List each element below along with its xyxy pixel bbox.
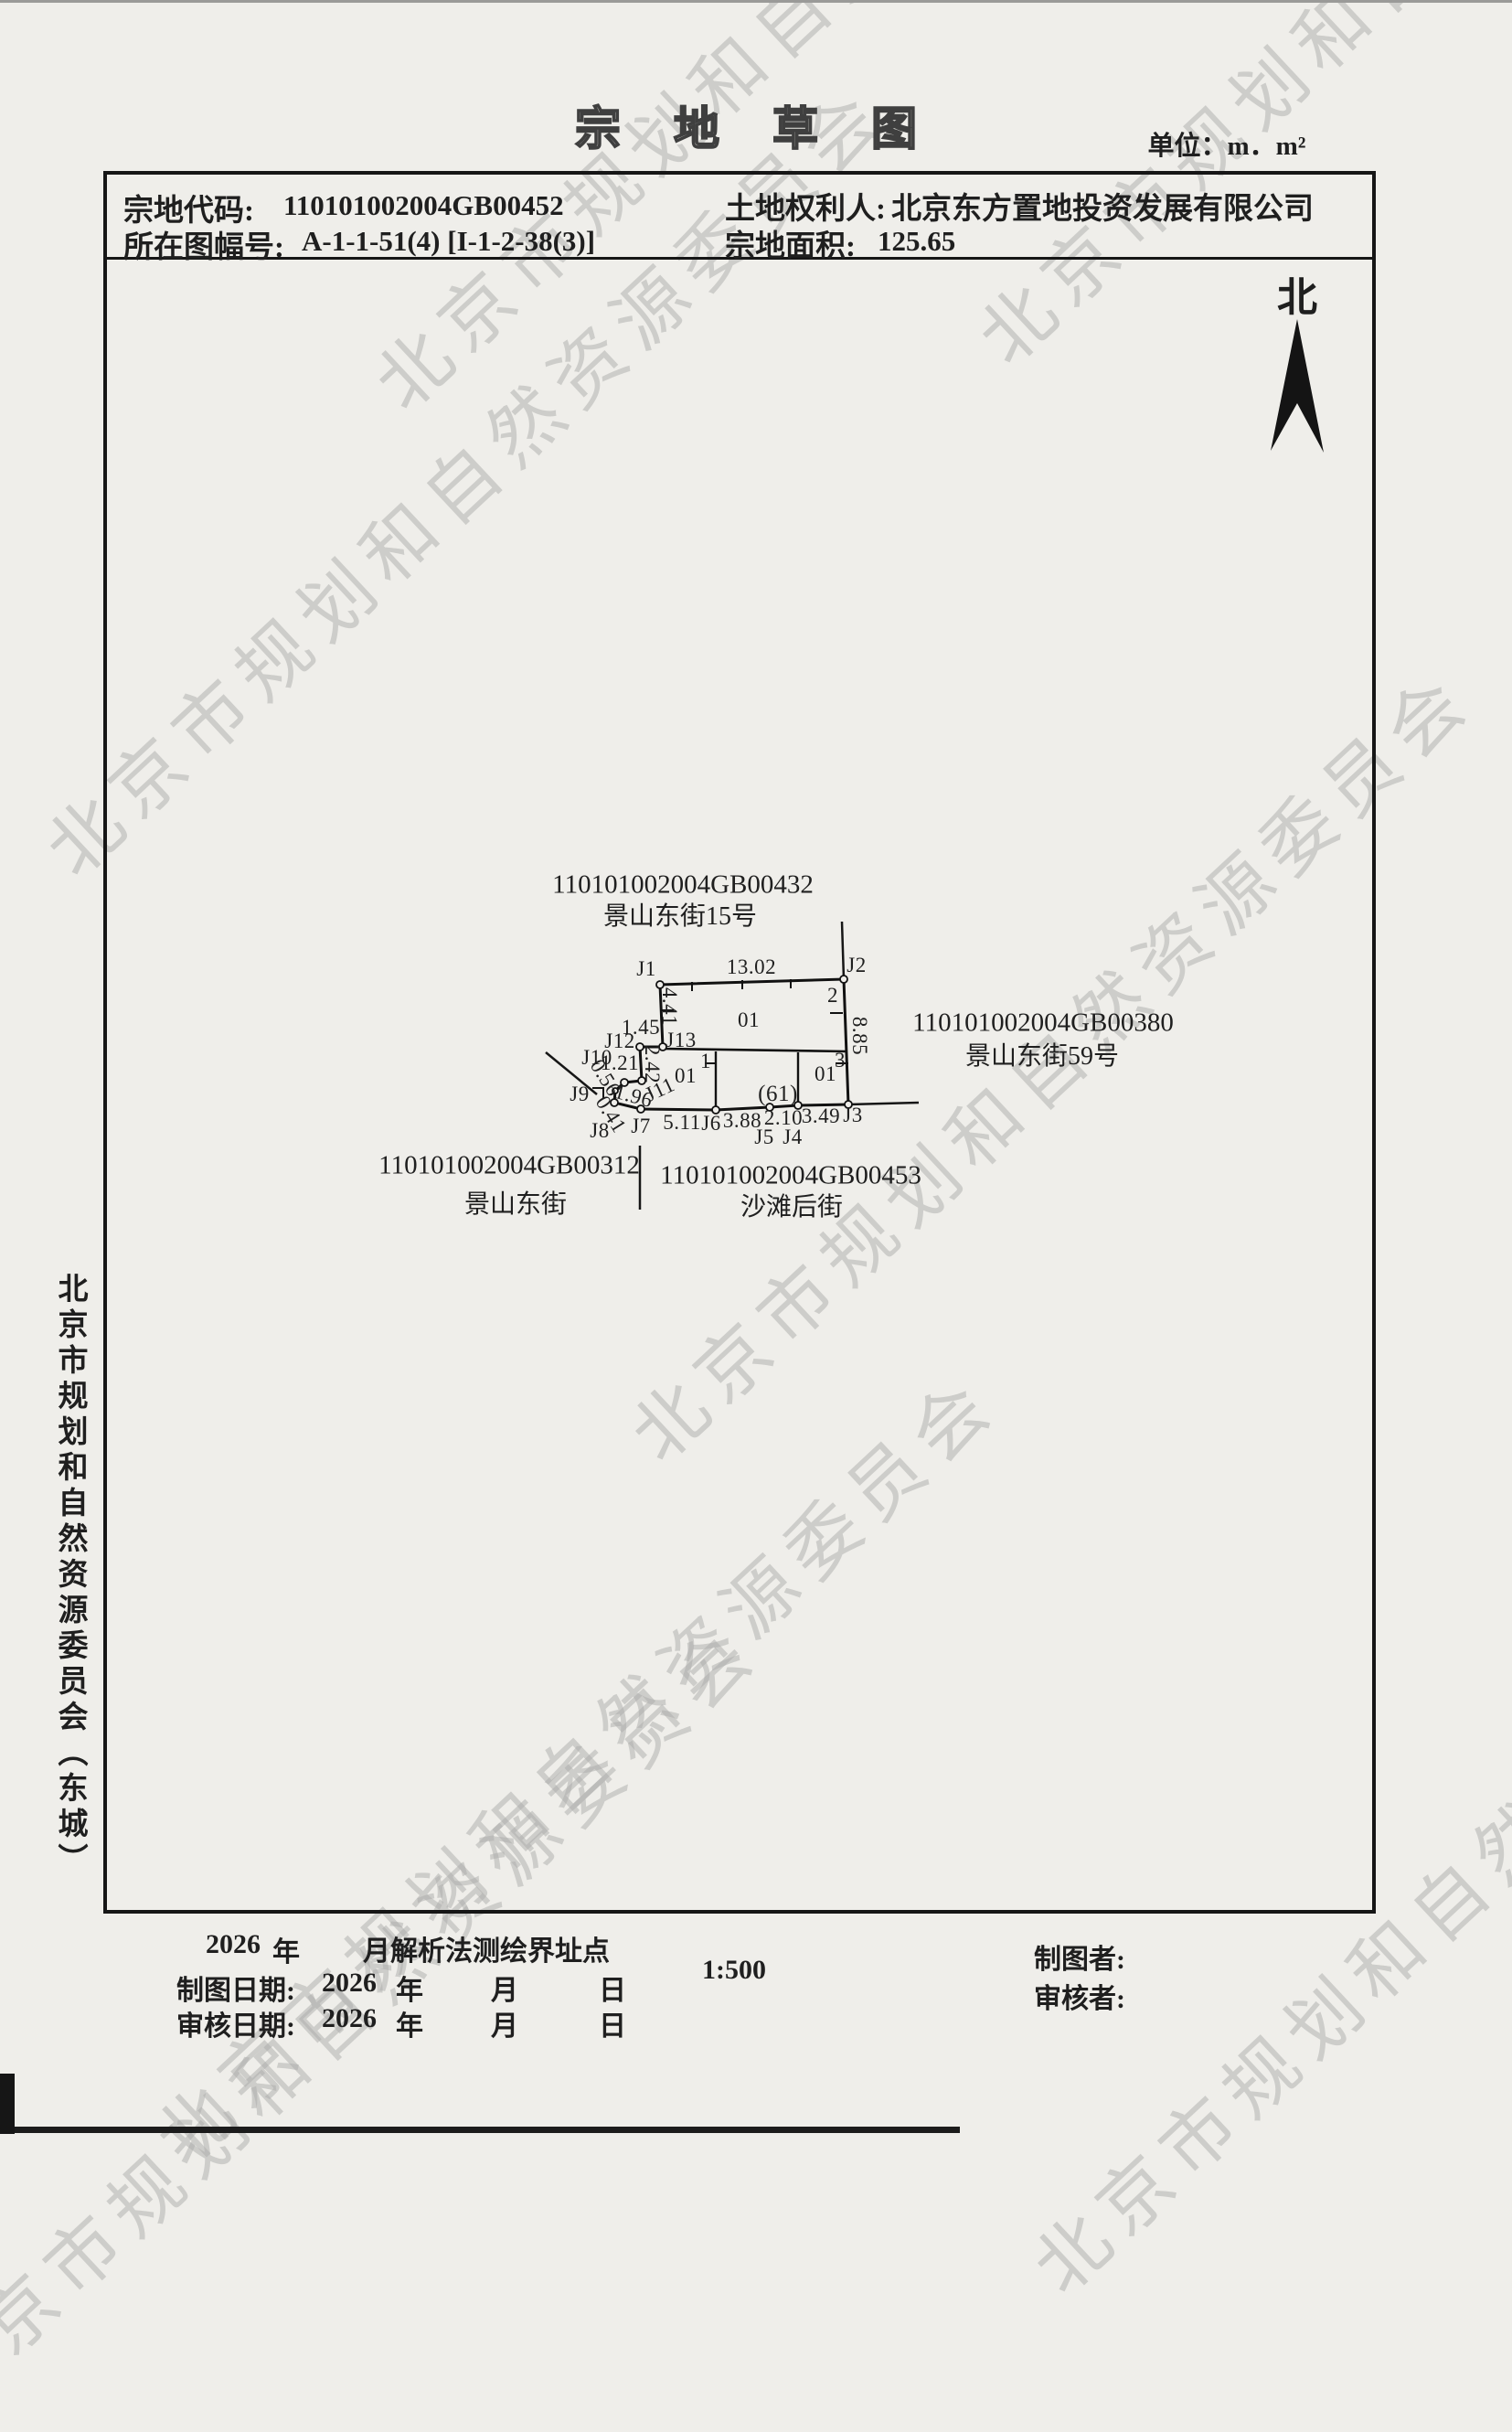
draw-date-year-char: 年: [396, 1968, 423, 2008]
review-date-year-char: 年: [396, 2003, 423, 2043]
neighbor-southwest-name: 景山东街: [464, 1184, 567, 1221]
draw-date-year: 2026: [322, 1968, 377, 1999]
boundary-extension-north: [842, 922, 844, 979]
subparcel-01-top: 01: [738, 1008, 760, 1032]
parcel-sketch-svg: [0, 0, 1512, 2138]
measurement-2-42: 2.42: [640, 1045, 664, 1083]
survey-method-text: 月解析法测绘界址点: [363, 1928, 610, 1968]
point-label-j7: J7: [631, 1115, 650, 1138]
neighbor-east-name: 景山东街59号: [965, 1036, 1119, 1072]
measurement-4-41: 4.41: [657, 987, 681, 1026]
drafter-label: 制图者:: [1034, 1936, 1125, 1977]
measurement-3-49: 3.49: [802, 1104, 840, 1128]
review-date-month-char: 月: [491, 2003, 518, 2043]
point-label-j3: J3: [843, 1104, 862, 1127]
building-number-2: 2: [827, 984, 838, 1008]
measurement-1-45: 1.45: [622, 1016, 660, 1040]
point-label-j13: J13: [665, 1029, 696, 1052]
measurement-5-11: 5.11: [663, 1111, 700, 1135]
measurement-13-02: 13.02: [727, 955, 776, 979]
map-scale: 1:500: [702, 1955, 766, 1986]
agency-side-text: 北京市规划和自然资源委员会（东城）: [48, 1273, 91, 1879]
draw-date-label: 制图日期:: [176, 1968, 295, 2008]
neighbor-east-code: 110101002004GB00380: [912, 1008, 1174, 1039]
point-label-j9: J9: [570, 1083, 589, 1106]
subparcel-01-right: 01: [815, 1062, 836, 1086]
scanned-parcel-sketch-page: { "title": "宗地草图", "unit_label": "单位：m．m…: [0, 0, 1512, 2138]
draw-date-day-char: 日: [599, 1968, 626, 2008]
review-date-label: 审核日期:: [176, 2003, 295, 2043]
neighbor-north-name: 景山东街15号: [603, 896, 757, 933]
review-date-day-char: 日: [599, 2003, 626, 2043]
measurement-2-10: 2.10: [764, 1106, 803, 1130]
point-label-j1: J1: [636, 957, 655, 981]
measurement-8-85: 8.85: [847, 1017, 871, 1055]
measurement-3-88: 3.88: [723, 1109, 761, 1133]
subparcel-01-left: 01: [675, 1064, 697, 1088]
draw-date-month-char: 月: [491, 1968, 518, 2008]
point-label-j2: J2: [847, 954, 866, 977]
subparcel-61: (61): [758, 1082, 798, 1107]
review-date-year: 2026: [322, 2003, 377, 2034]
north-arrow-icon: [1271, 319, 1324, 453]
point-label-j6: J6: [701, 1112, 720, 1136]
building-number-1: 1: [700, 1050, 711, 1073]
neighbor-south-name: 沙滩后街: [740, 1187, 843, 1223]
survey-year-char: 年: [272, 1929, 300, 1969]
reviewer-label: 审核者:: [1034, 1976, 1125, 2016]
neighbor-southwest-code: 110101002004GB00312: [378, 1151, 640, 1181]
survey-year-value: 2026: [206, 1929, 261, 1960]
